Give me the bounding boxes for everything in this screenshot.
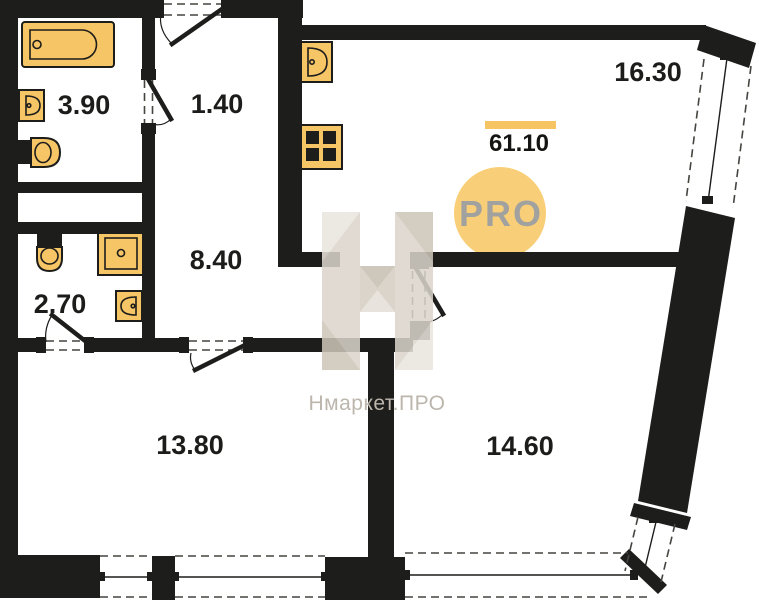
stove — [299, 125, 342, 169]
area-label-kitchen-living: 16.30 — [614, 57, 682, 87]
floor-plan-canvas: 61.10 PRO — [0, 0, 759, 600]
wc-sink — [116, 291, 142, 321]
bathroom-sink — [19, 90, 44, 121]
accent-bar — [485, 121, 556, 129]
shower-tray — [98, 232, 143, 275]
bathtub — [22, 22, 114, 67]
area-label-entry-nook: 1.40 — [191, 89, 244, 119]
toilet-wc — [37, 233, 62, 271]
area-label-corridor: 8.40 — [190, 245, 243, 275]
pro-badge-label: PRO — [459, 193, 543, 234]
area-label-toilet: 2.70 — [34, 289, 87, 319]
kitchen-sink — [299, 42, 332, 82]
total-area-label: 61.10 — [489, 130, 549, 157]
area-label-bathroom: 3.90 — [58, 90, 111, 120]
floor-plan: 61.10 PRO — [0, 0, 759, 600]
toilet-bathroom — [18, 138, 60, 167]
watermark-text: Нмаркет.ПРО — [309, 392, 446, 415]
area-label-room-right: 14.60 — [486, 431, 554, 461]
area-label-room-left: 13.80 — [156, 430, 224, 460]
